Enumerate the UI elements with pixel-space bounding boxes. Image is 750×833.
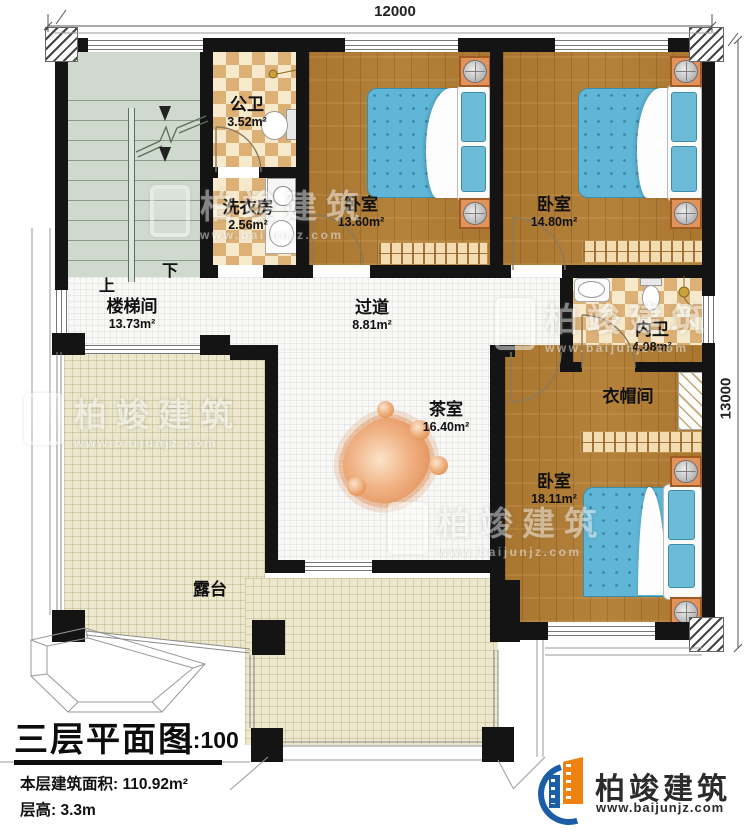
wall bbox=[562, 265, 715, 278]
dimension-top: 12000 bbox=[355, 3, 435, 20]
bed1-nightstand-plant bbox=[459, 56, 491, 87]
bed2-cushion bbox=[671, 92, 697, 142]
room-name: 露台 bbox=[193, 580, 227, 600]
watermark-url: www.baijunjz.com bbox=[438, 545, 606, 559]
section-hatch bbox=[689, 27, 724, 62]
wall bbox=[265, 360, 278, 573]
bed2-nightstand-plant bbox=[670, 198, 702, 229]
column bbox=[252, 620, 285, 655]
room-name: 茶室 bbox=[423, 400, 470, 420]
stair-rail bbox=[128, 108, 135, 282]
wall bbox=[702, 343, 715, 640]
wall bbox=[259, 167, 296, 178]
section-hatch bbox=[45, 27, 78, 62]
tea-cushion bbox=[377, 401, 394, 418]
floor-height-line: 层高: 3.3m bbox=[20, 798, 96, 820]
room-name: 衣帽间 bbox=[603, 387, 654, 407]
room-name: 公卫 bbox=[227, 95, 267, 115]
logo-building-windows bbox=[566, 764, 571, 800]
plant-icon bbox=[674, 60, 698, 83]
wall bbox=[55, 38, 68, 290]
wall bbox=[635, 362, 715, 372]
floor-area-line: 本层建筑面积: 110.92m² bbox=[20, 772, 188, 794]
cloakroom-wardrobe bbox=[678, 372, 704, 430]
tea-cushion bbox=[429, 456, 448, 475]
watermark-name: 柏竣建筑 bbox=[545, 293, 713, 341]
wall bbox=[702, 38, 715, 296]
watermark-url: www.baijunjz.com bbox=[74, 436, 242, 450]
room-area: 13.73m² bbox=[107, 317, 158, 331]
column bbox=[482, 727, 514, 762]
room-label-terrace: 露台 bbox=[193, 580, 227, 600]
room-label-tea-room: 茶室 16.40m² bbox=[423, 400, 470, 434]
bed3-cushion bbox=[668, 544, 695, 588]
room-name: 楼梯间 bbox=[107, 297, 158, 317]
wall bbox=[200, 265, 218, 278]
wall bbox=[200, 335, 230, 355]
title-underline bbox=[14, 760, 222, 765]
watermark-name: 柏竣建筑 bbox=[74, 388, 242, 436]
room-name: 卧室 bbox=[531, 195, 578, 215]
floor-plan-canvas: 楼梯间 13.73m² 公卫 3.52m² 洗衣房 2.56m² 卧室 13.6… bbox=[0, 0, 750, 833]
room-label-cloakroom: 衣帽间 bbox=[603, 387, 654, 407]
section-hatch bbox=[689, 617, 724, 652]
room-label-corridor: 过道 8.81m² bbox=[352, 298, 392, 332]
window bbox=[345, 40, 458, 50]
cloakroom-rack bbox=[580, 431, 702, 453]
bed2-cushion bbox=[671, 146, 697, 192]
bed3-cushion bbox=[668, 490, 695, 540]
wall bbox=[490, 52, 503, 265]
room-name: 过道 bbox=[352, 298, 392, 318]
wall bbox=[52, 333, 85, 355]
watermark: 柏竣建筑 www.baijunjz.com bbox=[24, 388, 242, 450]
logo-building-windows bbox=[551, 779, 555, 804]
dimension-right: 13000 bbox=[718, 364, 735, 434]
room-area: 16.40m² bbox=[423, 420, 470, 434]
wall bbox=[573, 362, 582, 372]
bed1-nightstand-plant bbox=[459, 198, 491, 229]
watermark-url: www.baijunjz.com bbox=[545, 341, 713, 355]
room-area: 8.81m² bbox=[352, 318, 392, 332]
bed2-bench bbox=[582, 240, 703, 263]
stair-down-label: 下 bbox=[162, 263, 178, 281]
watermark-name: 柏竣建筑 bbox=[438, 497, 606, 545]
window bbox=[555, 40, 668, 50]
plant-icon bbox=[463, 60, 487, 83]
bed1-cushion bbox=[461, 92, 486, 142]
bed1-bench bbox=[378, 242, 488, 265]
sliding-door bbox=[85, 345, 200, 354]
wall bbox=[203, 38, 345, 52]
plan-title: 三层平面图 bbox=[14, 712, 194, 761]
room-label-public-bath: 公卫 3.52m² bbox=[227, 95, 267, 129]
tea-cushion bbox=[347, 477, 366, 496]
plant-icon bbox=[463, 202, 487, 225]
logo-website-url: www.baijunjz.com bbox=[596, 800, 724, 815]
room-label-bedroom2: 卧室 14.80m² bbox=[531, 195, 578, 229]
wall bbox=[490, 622, 548, 640]
room-area: 3.52m² bbox=[227, 115, 267, 129]
terrace-lower-floor bbox=[245, 578, 498, 745]
wall bbox=[370, 265, 511, 278]
window bbox=[548, 626, 655, 636]
plant-icon bbox=[674, 460, 698, 483]
room-area: 14.80m² bbox=[531, 215, 578, 229]
wall bbox=[263, 265, 313, 278]
wall bbox=[265, 560, 305, 573]
watermark-logo-icon bbox=[24, 393, 64, 445]
wall bbox=[213, 167, 218, 178]
room-name: 卧室 bbox=[531, 472, 577, 492]
bed3-nightstand-plant bbox=[670, 456, 702, 487]
watermark: 柏竣建筑 www.baijunjz.com bbox=[150, 180, 368, 242]
watermark-name: 柏竣建筑 bbox=[200, 180, 368, 228]
room-label-stairwell: 楼梯间 13.73m² bbox=[107, 297, 158, 331]
wall bbox=[458, 38, 555, 52]
watermark-url: www.baijunjz.com bbox=[200, 228, 368, 242]
plan-scale: 1:100 bbox=[180, 727, 239, 754]
watermark: 柏竣建筑 www.baijunjz.com bbox=[495, 293, 713, 355]
wall bbox=[230, 345, 278, 360]
watermark-logo-icon bbox=[388, 502, 428, 554]
watermark-logo-icon bbox=[495, 298, 535, 350]
window bbox=[56, 290, 67, 333]
stair-up-label: 上 bbox=[99, 278, 115, 296]
column bbox=[52, 610, 85, 642]
watermark: 柏竣建筑 www.baijunjz.com bbox=[388, 497, 606, 559]
column bbox=[251, 728, 283, 762]
wall bbox=[372, 560, 505, 573]
bed1-cushion bbox=[461, 146, 486, 192]
watermark-logo-icon bbox=[150, 185, 190, 237]
plant-icon bbox=[674, 202, 698, 225]
window bbox=[88, 40, 203, 50]
sliding-door bbox=[305, 562, 372, 571]
